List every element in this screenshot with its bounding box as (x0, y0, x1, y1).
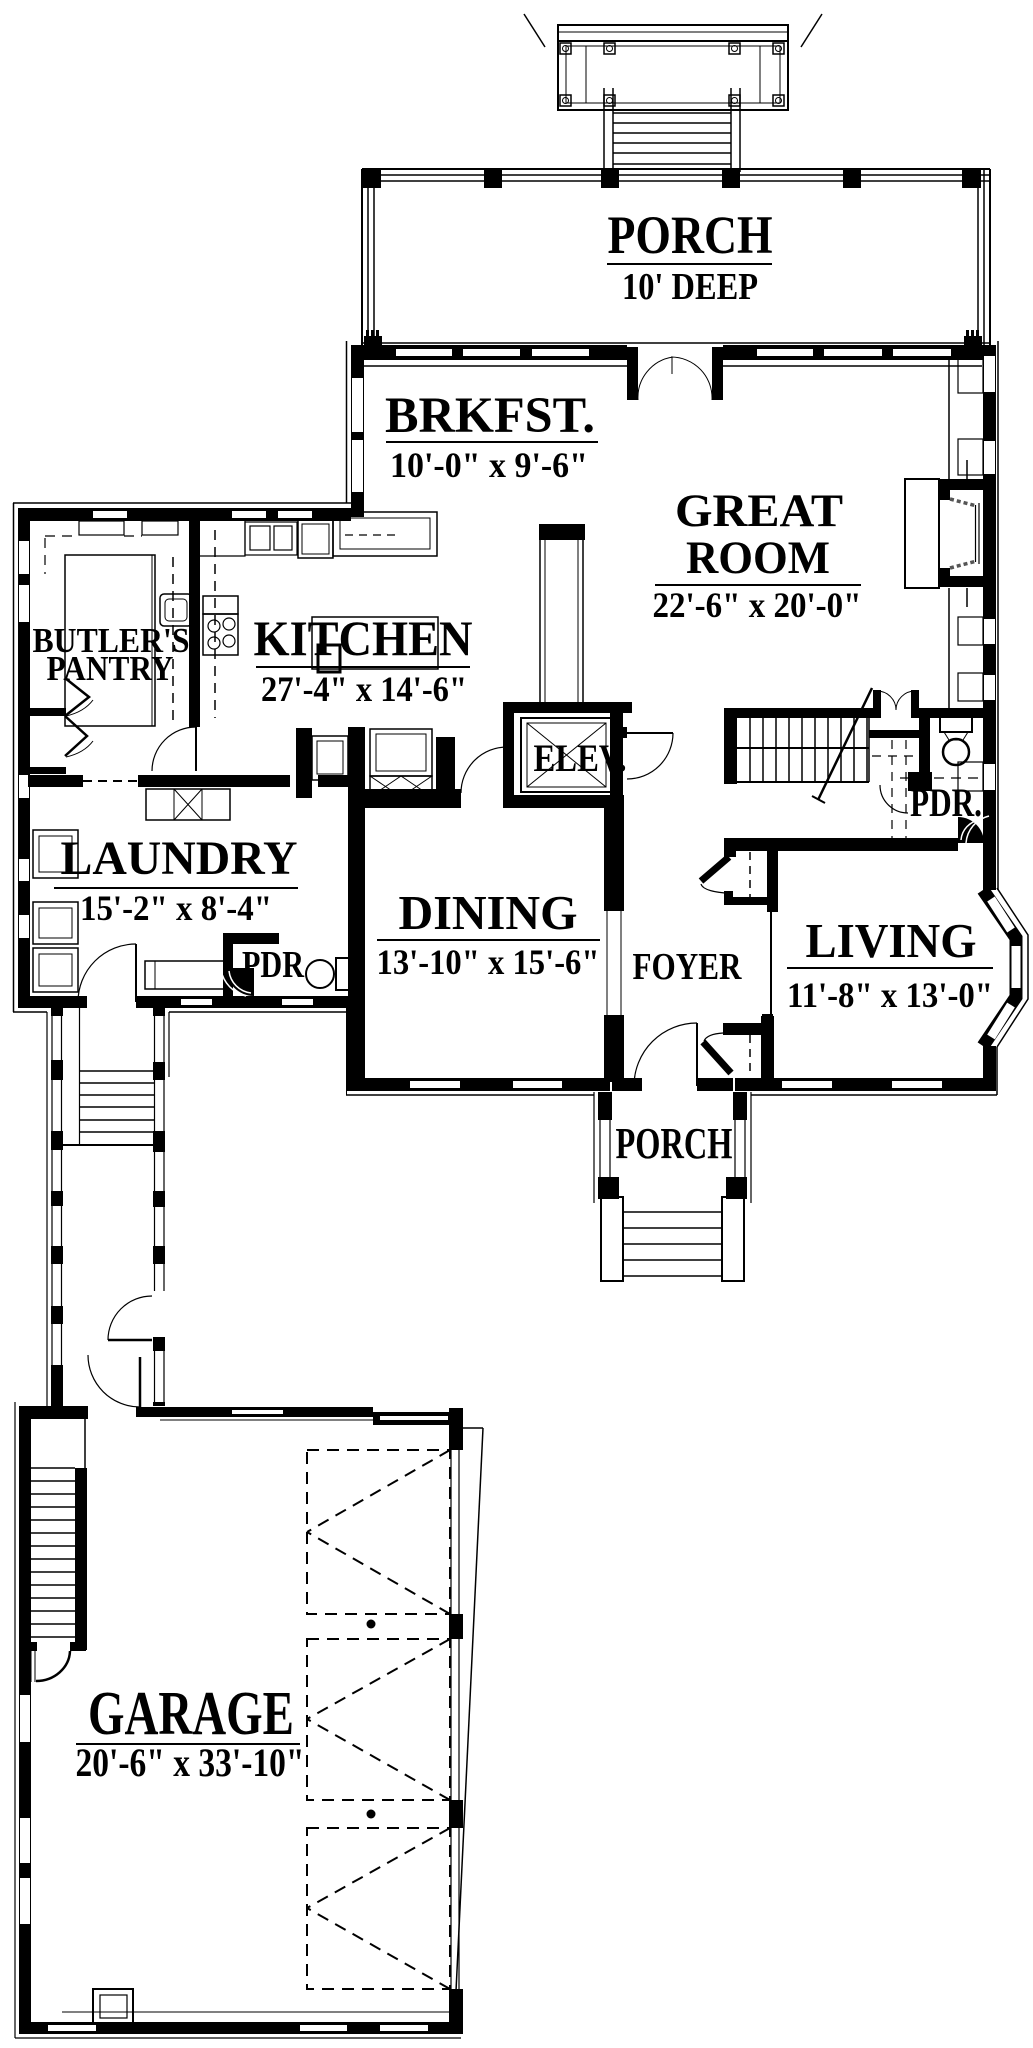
svg-text:20'-6" x 33'-10": 20'-6" x 33'-10" (76, 1740, 305, 1785)
svg-text:11'-8" x 13'-0": 11'-8" x 13'-0" (787, 975, 993, 1015)
svg-text:27'-4" x 14'-6": 27'-4" x 14'-6" (261, 669, 467, 709)
svg-text:PDR.: PDR. (910, 780, 982, 825)
svg-text:22'-6" x 20'-0": 22'-6" x 20'-0" (653, 585, 862, 625)
svg-text:PORCH: PORCH (608, 205, 773, 265)
svg-text:PDR: PDR (242, 944, 304, 986)
svg-text:KITCHEN: KITCHEN (254, 610, 473, 666)
svg-text:GARAGE: GARAGE (88, 1680, 294, 1748)
svg-text:PORCH: PORCH (616, 1119, 733, 1168)
svg-text:BRKFST.: BRKFST. (385, 388, 595, 444)
svg-text:ELEV.: ELEV. (534, 737, 627, 780)
svg-text:10' DEEP: 10' DEEP (622, 266, 758, 308)
svg-text:FOYER: FOYER (633, 946, 742, 988)
svg-text:DINING: DINING (399, 885, 578, 940)
svg-text:LAUNDRY: LAUNDRY (61, 832, 298, 885)
svg-text:10'-0" x 9'-6": 10'-0" x 9'-6" (390, 445, 588, 485)
svg-text:LIVING: LIVING (806, 913, 977, 968)
svg-text:PANTRY: PANTRY (47, 649, 174, 688)
svg-text:13'-10" x 15'-6": 13'-10" x 15'-6" (377, 942, 600, 982)
svg-text:ROOM: ROOM (686, 532, 830, 584)
svg-text:15'-2" x 8'-4": 15'-2" x 8'-4" (80, 888, 272, 928)
svg-text:GREAT: GREAT (675, 485, 843, 537)
